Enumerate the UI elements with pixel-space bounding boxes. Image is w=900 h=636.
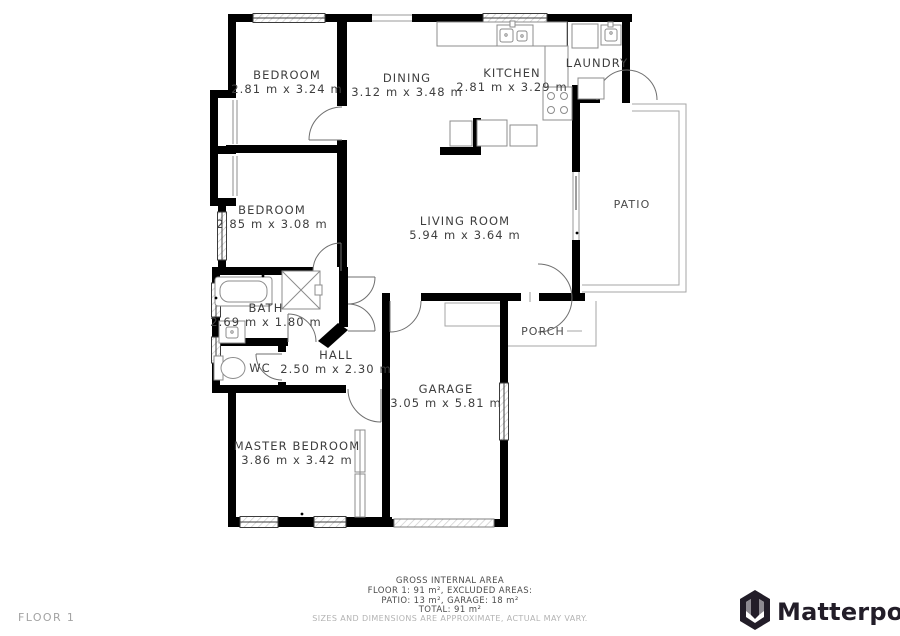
floor-label: FLOOR 1 (18, 611, 75, 624)
door-arc (309, 107, 342, 140)
window (253, 14, 325, 23)
room-name: WC (249, 361, 271, 375)
window (500, 383, 509, 440)
room-name: BEDROOM (238, 203, 306, 217)
sliding-patio-door (572, 172, 581, 240)
shower-icon (282, 271, 322, 309)
floor-plan-page: BEDROOM 2.81 m x 3.24 m DINING 3.12 m x … (0, 0, 900, 636)
room-name: MASTER BEDROOM (234, 439, 360, 453)
kitchen-sink-icon (497, 21, 533, 46)
room-name: LAUNDRY (566, 56, 628, 70)
room-name: DINING (383, 71, 431, 85)
room-label-bedroom-1: BEDROOM 2.81 m x 3.24 m (231, 68, 343, 96)
floor-plan-canvas: BEDROOM 2.81 m x 3.24 m DINING 3.12 m x … (0, 0, 900, 636)
room-label-laundry: LAUNDRY (566, 56, 628, 70)
room-dims: 2.81 m x 3.24 m (231, 82, 343, 96)
door-arc (313, 243, 341, 271)
window (314, 517, 346, 528)
room-label-dining: DINING 3.12 m x 3.48 m (351, 71, 463, 99)
garage-door (394, 519, 494, 527)
matterport-logo: Matterport (740, 590, 900, 630)
room-label-wc: WC (249, 361, 271, 375)
room-dims: 2.50 m x 2.30 m (280, 362, 392, 376)
room-label-bedroom-2: BEDROOM 2.85 m x 3.08 m (216, 203, 328, 231)
room-dims: 2.81 m x 3.29 m (456, 80, 568, 94)
matterport-wordmark: Matterport (777, 598, 900, 626)
room-dims: 2.85 m x 3.08 m (216, 217, 328, 231)
room-dims: 3.05 m x 5.81 m (390, 396, 502, 410)
room-name: BATH (249, 301, 284, 315)
room-name: GARAGE (419, 382, 474, 396)
front-door-threshold (521, 292, 539, 302)
porch-outline (508, 301, 596, 346)
room-dims: 5.94 m x 3.64 m (409, 228, 521, 242)
room-label-patio: PATIO (614, 198, 651, 211)
room-label-master-bedroom: MASTER BEDROOM 3.86 m x 3.42 m (234, 439, 360, 467)
door-arc (390, 301, 421, 332)
opening-pass (372, 14, 412, 22)
room-name: KITCHEN (483, 66, 541, 80)
window (240, 517, 278, 528)
room-dims: 3.12 m x 3.48 m (351, 85, 463, 99)
room-label-porch: PORCH (521, 325, 565, 338)
dryer-icon (578, 78, 604, 99)
footer-title: GROSS INTERNAL AREA (396, 576, 504, 586)
room-name: PORCH (521, 325, 565, 338)
room-label-living-room: LIVING ROOM 5.94 m x 3.64 m (409, 214, 521, 242)
room-dims: 2.69 m x 1.80 m (210, 315, 322, 329)
footer-disclaimer: SIZES AND DIMENSIONS ARE APPROXIMATE, AC… (312, 614, 587, 623)
footer-area-line: FLOOR 1: 91 m², EXCLUDED AREAS: (368, 586, 533, 596)
room-name: HALL (319, 348, 353, 362)
laundry-sink-icon (601, 22, 621, 45)
room-label-hall: HALL 2.50 m x 2.30 m (280, 348, 392, 376)
room-label-garage: GARAGE 3.05 m x 5.81 m (390, 382, 502, 410)
room-name: PATIO (614, 198, 651, 211)
garage-step (445, 303, 502, 326)
door-arc (348, 389, 381, 422)
room-name: BEDROOM (253, 68, 321, 82)
footer: GROSS INTERNAL AREA FLOOR 1: 91 m², EXCL… (18, 576, 588, 624)
room-dims: 3.86 m x 3.42 m (241, 453, 353, 467)
room-labels: BEDROOM 2.81 m x 3.24 m DINING 3.12 m x … (210, 56, 650, 467)
washer-icon (572, 24, 598, 48)
room-name: LIVING ROOM (420, 214, 510, 228)
toilet-icon (214, 356, 245, 380)
matterport-logo-icon (740, 590, 770, 630)
double-closet-doors (348, 277, 375, 331)
